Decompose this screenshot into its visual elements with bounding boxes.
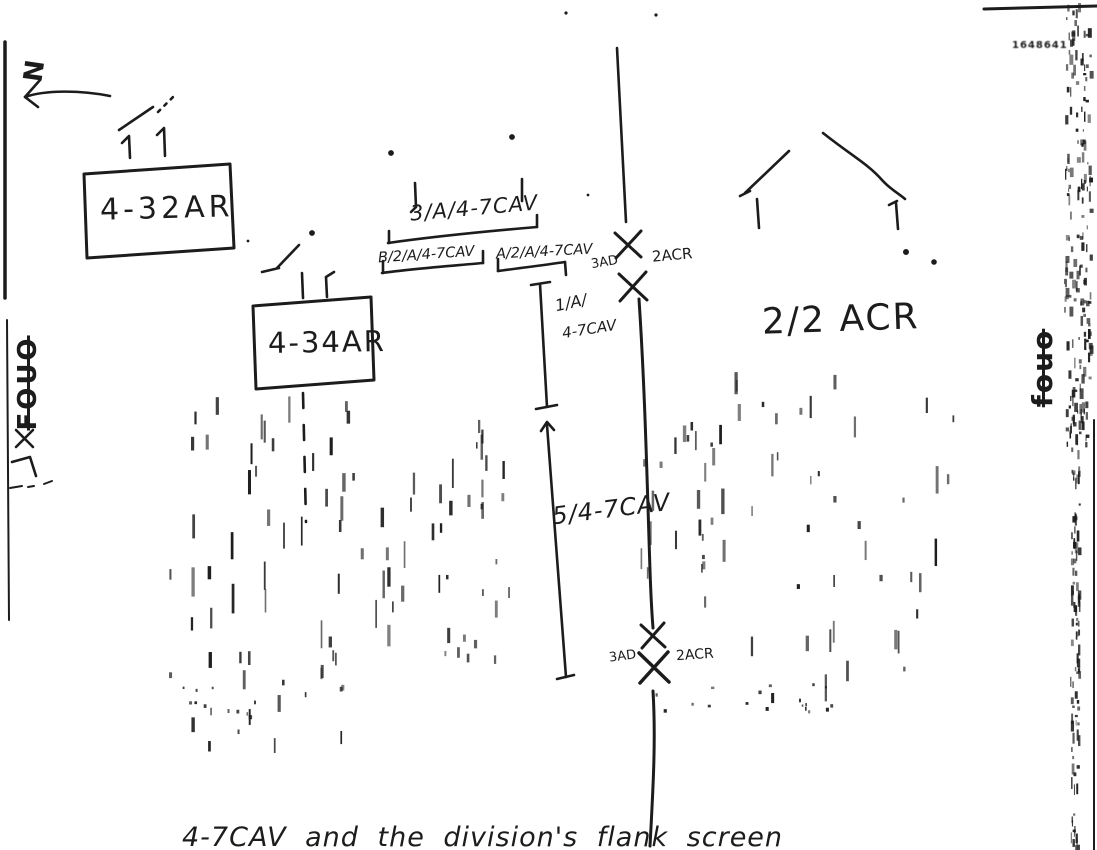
scanned-sketch-map: N 4-32AR 4-34AR 3/A/4-7CAV B/2/A/4-7CAV …: [0, 0, 1097, 850]
boundary-lower-right-unit: 2ACR: [676, 647, 715, 664]
figure-caption-cropped: 4-7CAV and the division's flank screen: [182, 824, 783, 850]
north-arrow: [25, 80, 110, 107]
opfor-screen-strokes: [740, 133, 936, 264]
north-label: N: [20, 58, 49, 83]
corner-smudge-stamp: 1648641: [1012, 41, 1068, 51]
boundary-lower-left-unit: 3AD: [608, 648, 637, 664]
boundary-upper-right-unit: 2ACR: [651, 246, 693, 264]
screen-line-1a: [531, 282, 557, 409]
opfor-label-2-2acr: 2/2 ACR: [761, 299, 920, 340]
photocopy-noise: [169, 3, 1094, 850]
movement-arrows-4-34ar: [262, 231, 334, 298]
boundary-upper-left-unit: 3AD: [590, 254, 619, 271]
screen-line-5: [541, 422, 574, 679]
boundary-upper: [615, 48, 647, 301]
unit-label-4-34ar: 4-34AR: [268, 327, 386, 358]
movement-arrows-4-32ar: [119, 96, 174, 158]
unit-label-4-32ar: 4-32AR: [100, 192, 234, 225]
fouo-stamp-right: fouo: [1029, 313, 1057, 423]
scan-edge-left-lower: [7, 320, 9, 620]
dashed-route-line: [303, 393, 306, 522]
boundary-main: [639, 299, 669, 846]
sketch-strokes: [0, 0, 1097, 850]
bracket-3a-4-7cav: [388, 135, 537, 243]
fouo-stamp-left: FOUO: [15, 328, 41, 438]
left-stamp-marks: [10, 430, 52, 488]
